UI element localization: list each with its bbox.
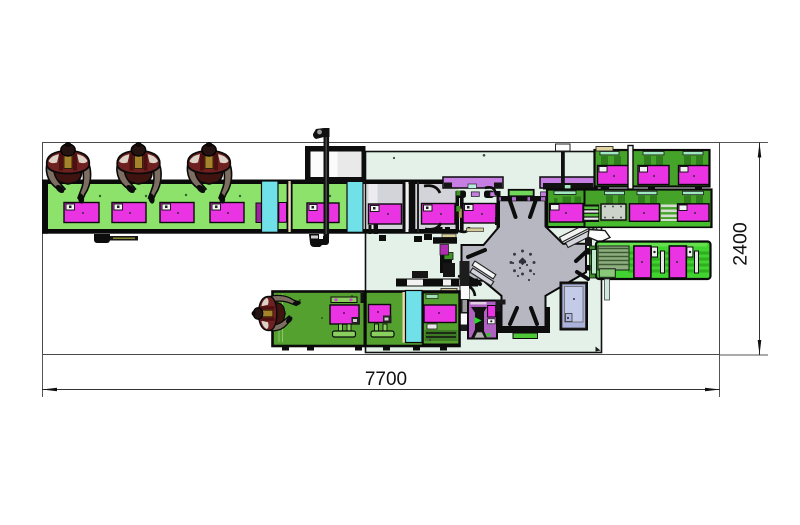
svg-text:7700: 7700: [365, 369, 407, 390]
svg-text:2400: 2400: [730, 222, 752, 266]
